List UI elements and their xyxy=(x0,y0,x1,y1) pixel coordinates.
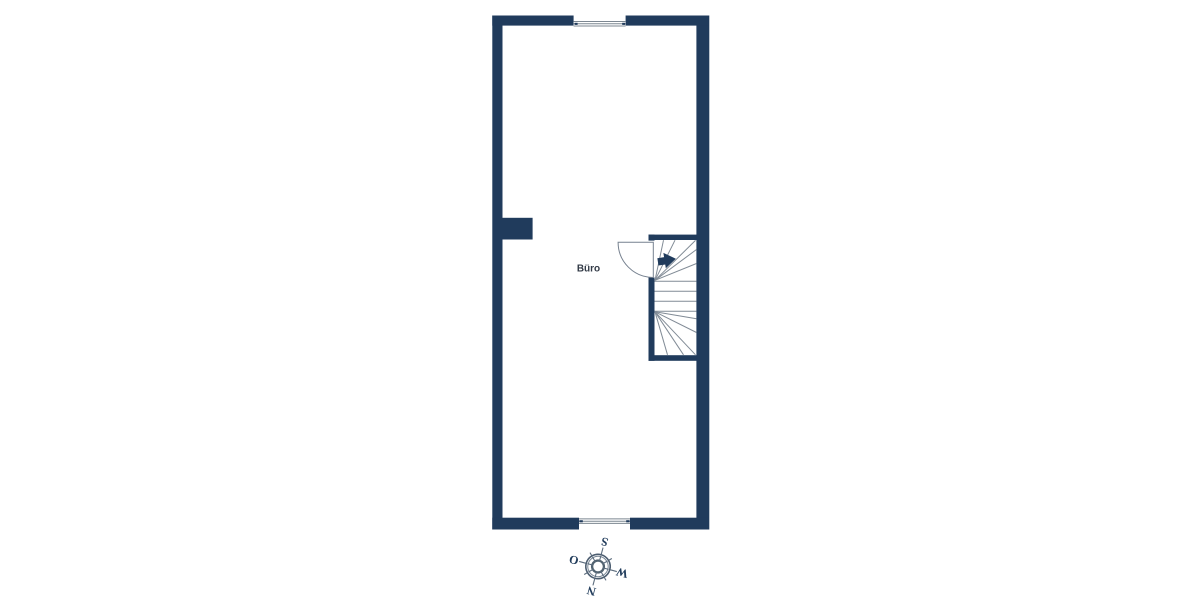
svg-text:W: W xyxy=(615,565,630,582)
svg-text:O: O xyxy=(568,552,581,568)
svg-text:N: N xyxy=(585,583,597,599)
svg-text:Büro: Büro xyxy=(577,264,600,275)
svg-text:S: S xyxy=(599,534,609,549)
